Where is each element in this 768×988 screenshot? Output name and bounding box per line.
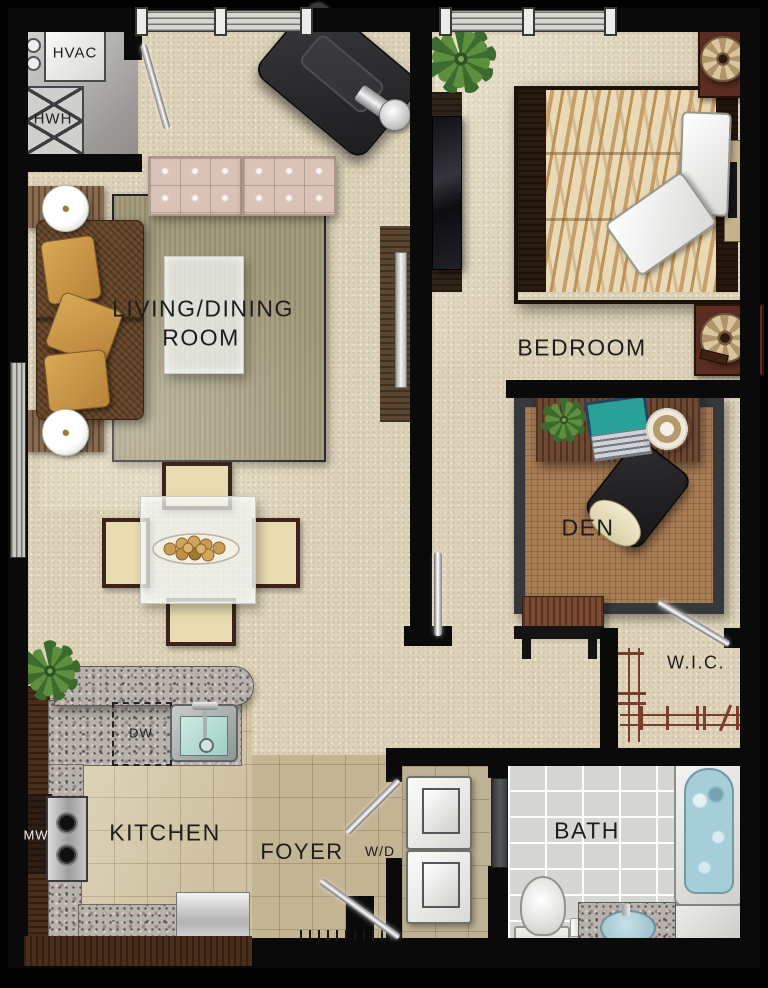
- dining-chair: [166, 598, 236, 646]
- sink-faucet: [192, 702, 218, 710]
- window-left-living: [10, 362, 26, 558]
- console-table-leg: [522, 639, 531, 659]
- toilet-bowl: [520, 876, 566, 936]
- window-mullion: [439, 7, 452, 36]
- closet-rod-tick: [618, 652, 644, 655]
- breakfast-bar: [54, 666, 254, 706]
- table-lamp: [42, 409, 89, 456]
- dining-chair: [252, 518, 300, 588]
- floor-lamp: [379, 99, 411, 131]
- closet-rod-tick: [616, 692, 646, 695]
- label-kitchen: KITCHEN: [109, 820, 220, 847]
- wall-den-wic: [600, 628, 618, 760]
- closet-rod-tick: [703, 706, 706, 730]
- label-living-line1: LIVING/DINING: [112, 296, 294, 323]
- label-bath: BATH: [554, 818, 620, 845]
- label-den: DEN: [561, 515, 614, 542]
- window-mullion: [214, 7, 227, 36]
- counter-left-lower: [48, 876, 82, 942]
- wall-central: [410, 28, 432, 646]
- closet-rod-vertical: [628, 648, 640, 742]
- label-foyer: FOYER: [260, 839, 343, 865]
- bath-door: [491, 778, 508, 868]
- label-wd: W/D: [365, 843, 395, 859]
- hvac-knob: [26, 38, 41, 53]
- label-mw: MW: [23, 828, 48, 843]
- burner: [56, 812, 78, 834]
- potted-plant: [424, 22, 498, 96]
- closet-rod-tick: [666, 706, 669, 730]
- wall-central-cap: [404, 626, 452, 646]
- desk-plant: [540, 392, 588, 448]
- kitchen-sink: [170, 704, 238, 762]
- label-hwh: HWH: [34, 111, 73, 128]
- wall-bedroom-den: [506, 380, 760, 398]
- window-mullion: [522, 7, 535, 36]
- refrigerator: [176, 892, 250, 942]
- sofa-pillow: [43, 349, 111, 413]
- desk-plate: [644, 406, 690, 452]
- wall-wic-bath: [386, 748, 760, 766]
- label-bedroom: BEDROOM: [517, 335, 646, 362]
- hall-door-open: [434, 552, 442, 636]
- closet-rod-tick: [616, 702, 646, 705]
- vanity-faucet: [622, 904, 630, 916]
- closet-rod-tick: [696, 706, 699, 730]
- entry-threshold: [300, 930, 398, 941]
- wall-foyer-bath-lower: [488, 866, 508, 944]
- centerpiece-platter: [152, 533, 240, 565]
- wall-right: [740, 8, 760, 948]
- range: [46, 796, 88, 882]
- bathtub-water: [684, 768, 734, 894]
- console-table-leg: [588, 639, 597, 659]
- table-lamp: [42, 185, 89, 232]
- hvac-knob: [26, 56, 41, 71]
- wall-utility-bottom: [8, 154, 142, 172]
- label-dw: DW: [129, 726, 153, 741]
- sink-drain: [199, 738, 214, 753]
- wall-top: [8, 8, 760, 32]
- sideboard-runner: [395, 252, 407, 388]
- label-hvac: HVAC: [53, 45, 98, 62]
- console-table-frame: [514, 626, 604, 639]
- tv-screen: [432, 116, 462, 270]
- washer: [406, 776, 472, 850]
- sink-faucet-stem: [203, 710, 207, 740]
- kitchen-cabinets-bottom: [24, 936, 252, 966]
- floor-plan: HVAC HWH LIVING/DINING ROOM BEDROOM DEN …: [0, 0, 768, 988]
- label-wic: W.I.C.: [667, 653, 725, 674]
- label-living-line2: ROOM: [162, 325, 240, 352]
- closet-rod-tick: [736, 706, 739, 730]
- burner: [56, 844, 78, 866]
- window-mullion: [135, 7, 148, 36]
- tufted-bench: [148, 156, 242, 216]
- window-mullion: [604, 7, 617, 36]
- bed-footboard: [518, 90, 546, 292]
- closet-rod-tick: [640, 706, 643, 730]
- window-mullion: [300, 7, 313, 36]
- wall-foyer-bath-upper: [488, 748, 508, 778]
- tufted-bench: [242, 156, 336, 216]
- dryer: [406, 850, 472, 924]
